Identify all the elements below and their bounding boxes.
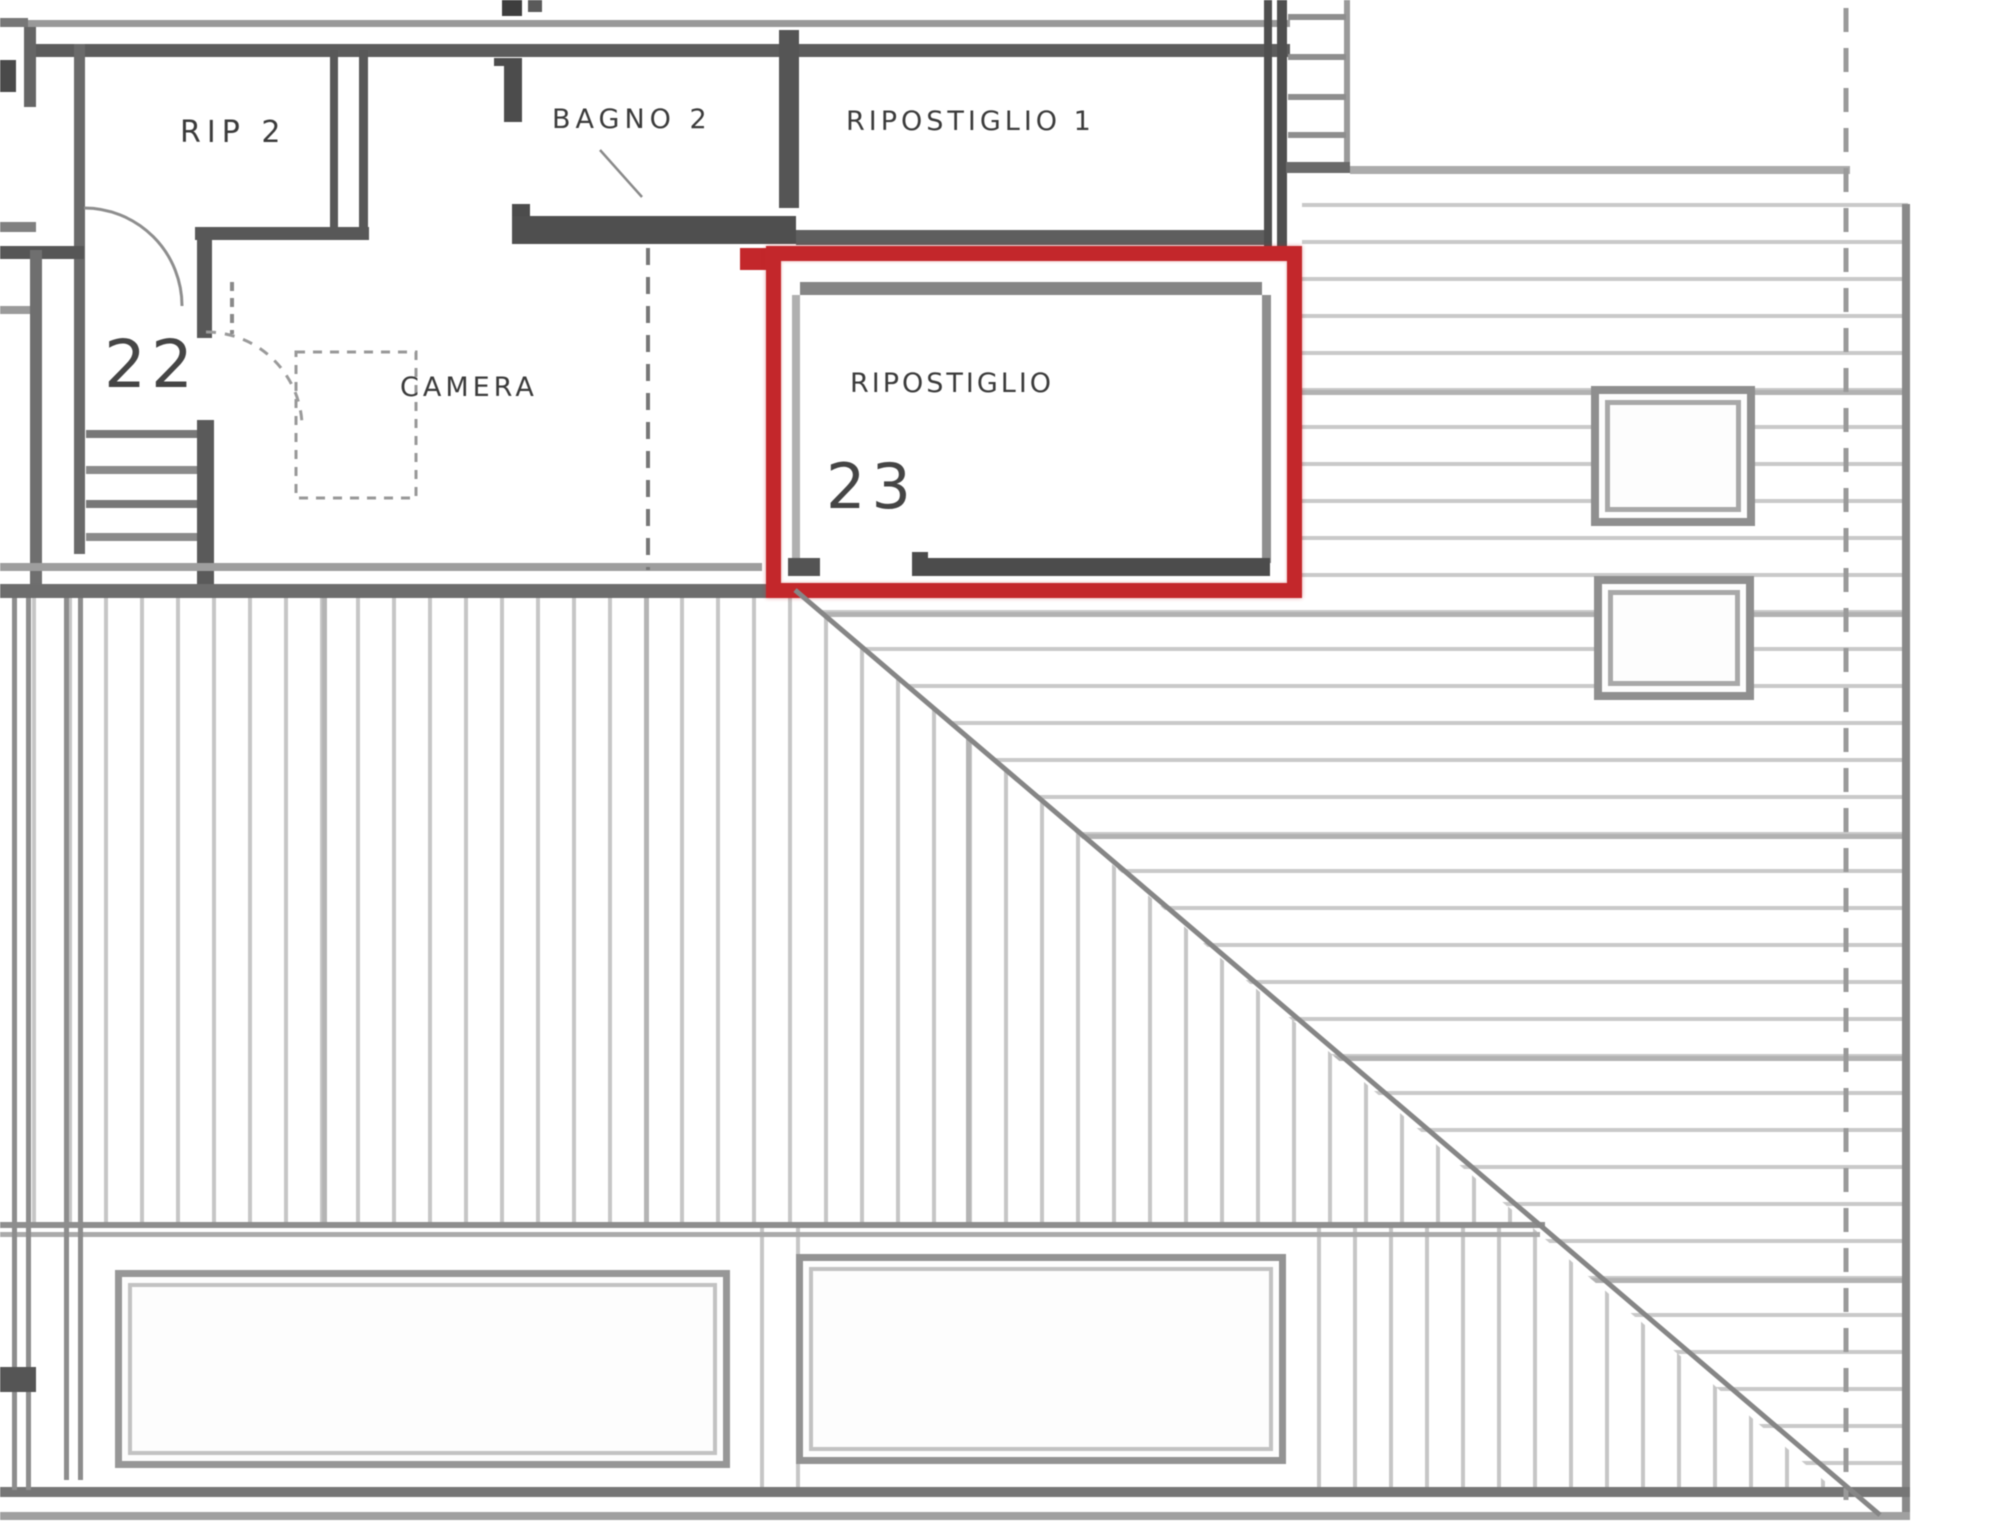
terrace-opening [796, 1254, 1286, 1464]
stair-tread [86, 466, 198, 474]
terrace-opening-inner-frame [809, 1267, 1273, 1451]
stair-tread [86, 500, 198, 508]
ladder-rung [1288, 14, 1346, 20]
wall-segment [512, 216, 796, 244]
wardrobe-outline-dashed [296, 352, 416, 498]
floor-plan-canvas: RIP 2 BAGNO 2 RIPOSTIGLIO 1 CAMERA RIPOS… [0, 0, 2000, 1533]
ladder-rung [1286, 162, 1350, 173]
wall-segment [1277, 0, 1287, 250]
skylight-inner-frame [1608, 590, 1740, 686]
skylight [1594, 576, 1754, 700]
boundary-line [0, 1512, 1910, 1520]
room-label-bagno2: BAGNO 2 [552, 106, 712, 133]
wall-segment [195, 227, 369, 240]
unit-number-23: 23 [826, 456, 917, 518]
scan-mark [502, 0, 522, 16]
wall-segment [796, 230, 1270, 245]
wall-segment [26, 598, 31, 1490]
door-swing-arc-dashed [206, 332, 302, 424]
wall-segment [30, 250, 42, 590]
wall-segment [0, 60, 16, 92]
boundary-line [0, 1222, 1545, 1228]
stair-tread [86, 430, 198, 438]
wall-segment [330, 50, 338, 238]
wall-segment [0, 222, 36, 232]
wall-segment [12, 598, 17, 1490]
wall-segment [1264, 0, 1272, 246]
wall-segment [0, 306, 30, 314]
wall-segment [1344, 0, 1350, 172]
terrace-opening-inner-frame [128, 1283, 717, 1455]
wall-segment [359, 50, 368, 238]
ladder-rung [1288, 54, 1346, 60]
wall-segment [779, 30, 799, 208]
wall-segment [494, 58, 522, 66]
wall-segment [78, 598, 83, 1480]
roof-edge-line [1350, 166, 1850, 174]
ladder-rung [1288, 94, 1346, 100]
ladder-rung [1288, 132, 1346, 138]
skylight [1591, 386, 1755, 526]
wall-segment [74, 44, 85, 554]
wall-segment [25, 44, 1290, 57]
wall-segment [0, 18, 28, 27]
wall-segment [0, 563, 762, 571]
hatch-line-dark [322, 598, 327, 1228]
terrace-opening [115, 1270, 730, 1468]
skylight-inner-frame [1605, 400, 1741, 512]
room-label-camera: CAMERA [400, 374, 538, 401]
wall-segment [0, 584, 770, 598]
room-label-ripostiglio1: RIPOSTIGLIO 1 [846, 108, 1095, 135]
room-label-ripostiglio23: RIPOSTIGLIO [850, 370, 1054, 397]
wall-segment [0, 246, 84, 259]
unit-number-22: 22 [104, 332, 198, 398]
wall-segment [504, 58, 522, 122]
label-leader-line [600, 150, 642, 197]
terrace-hatch-strip [728, 1228, 802, 1490]
stair-tread [86, 533, 198, 541]
wall-segment [0, 1367, 36, 1392]
boundary-line [0, 1232, 1540, 1237]
wall-segment [197, 240, 212, 338]
boundary-line [0, 1487, 1910, 1497]
scan-mark [528, 0, 542, 12]
highlight-box-room-23 [766, 246, 1302, 598]
hatch-line-dark [644, 598, 649, 1228]
wall-segment [64, 598, 69, 1480]
room-label-rip2: RIP 2 [180, 118, 286, 148]
wall-segment [25, 20, 1290, 27]
wall-segment [24, 27, 36, 107]
boundary-line [1902, 204, 1910, 1520]
door-swing-arc [84, 208, 182, 306]
